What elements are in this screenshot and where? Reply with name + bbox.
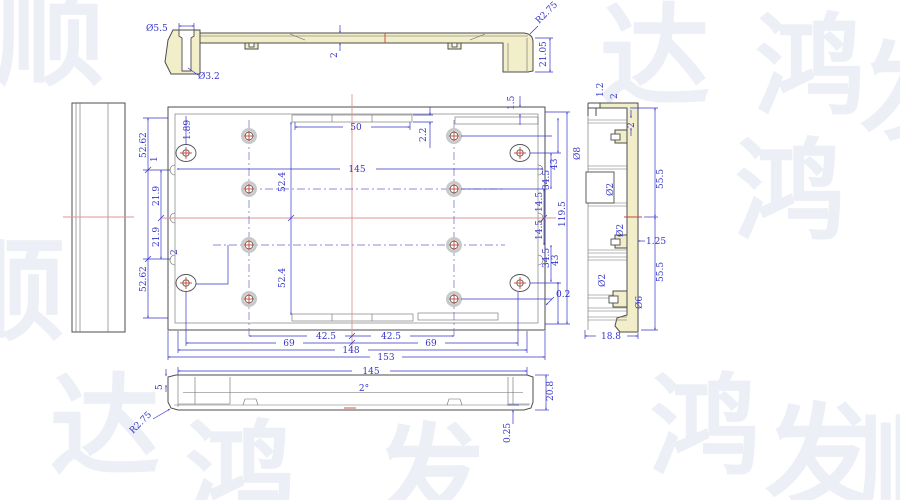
watermark-char: 鸿 [650,363,760,491]
dim-label: 2° [359,384,369,394]
dim-label: 145 [348,165,365,175]
dim-label: Ø2 [605,183,616,196]
boss-hole [243,239,256,252]
dim-label: 5 [155,384,165,390]
dim-label: 43 [550,158,560,170]
boss-hole [243,130,256,143]
dim-label: Ø2 [597,274,608,287]
dim-label: 1.5 [507,95,517,110]
top-profile-view: Ø5.5 Ø3.2 2 R2.75 21.05 [146,0,560,82]
dim-label: Ø2 [615,224,626,237]
top-right-slot [455,117,538,124]
watermark-char: 鸿 [755,3,865,131]
dim-label: 1 [150,156,160,162]
boss-hole [243,293,256,306]
dim-label: Ø8 [572,147,583,160]
plan-view: 52.62 52.62 21.9 21.9 1 2 1.89 52.4 52.4… [139,94,570,363]
dim-label-dia32: Ø3.2 [198,71,220,82]
plan-outer-wall [168,107,545,330]
boss-hole [448,183,461,196]
clip-bump [447,399,462,405]
boss-hole [448,130,461,143]
dim-label: 1.2 [596,83,606,97]
watermark-char: 顺 [0,228,65,356]
watermark-char: 发 [860,28,900,156]
cad-drawing-sheet: 顺 达 鸿 发 鸿 顺 达 鸿 发 鸿 发 顺 Ø5.5 Ø3.2 2 [0,0,900,500]
dim-label: Ø6 [634,296,645,309]
dim-label: 18.8 [601,332,621,342]
dim-label: 119.5 [558,201,568,227]
section-plate [200,33,533,72]
watermark-char: 顺 [0,0,105,101]
dim-label: 1.89 [183,120,193,140]
dim-label: 21.9 [152,186,162,206]
dim-label: 21.9 [152,227,162,247]
right-section-view: 1.2 2 2 Ø8 Ø2 55.5 55.5 Ø2 1.25 Ø2 Ø6 18… [572,83,666,342]
clip-bump [243,399,258,405]
dim-label: 2 [610,93,620,99]
dim-label: 52.4 [278,172,288,192]
dim-label: 50 [350,123,362,133]
dim-label: 69 [425,339,437,349]
rib-lines [588,120,627,320]
boss-hole [448,239,461,252]
dim-label-thk2: 2 [330,52,340,58]
dim-label: 2 [170,249,180,255]
dim-label-dia55: Ø5.5 [146,23,168,34]
watermark-char: 鸿 [185,410,295,500]
dim-label: 0.2 [556,290,570,300]
dim-label-2105: 21.05 [539,41,549,67]
corner-slot-hole [510,275,530,292]
left-side-view [63,103,134,332]
watermark-char: 顺 [857,403,900,500]
dim-label: 2 [627,122,637,128]
boss-hole [243,183,256,196]
bottom-slot [292,314,413,321]
dim-label: 52.4 [278,268,288,288]
dim-label: 52.62 [139,266,149,292]
corner-slot-hole [176,145,196,162]
dim-label: 55.5 [656,169,666,189]
boss-holes [243,130,461,306]
dim-label: 42.5 [381,332,401,342]
dim-label: 34.5 [542,170,552,190]
dim-label: 52.62 [139,132,149,158]
watermark-char: 鸿 [735,128,845,256]
dim-label-r275-top: R2.75 [534,0,560,26]
dim-label: 2.2 [419,128,429,142]
dim-label: 1.25 [646,237,666,247]
dim-label: 148 [342,346,359,356]
dim-label: 20.8 [546,381,556,401]
drawing-svg: 顺 达 鸿 发 鸿 顺 达 鸿 发 鸿 发 顺 Ø5.5 Ø3.2 2 [0,0,900,500]
watermark-char: 发 [375,413,485,500]
boss-hole [448,293,461,306]
bottom-right-slot [418,313,498,320]
dim-label: 14.5 [535,220,545,240]
plan-inner-wall [175,114,538,323]
dim-label: 0.25 [503,423,513,443]
dim-label: 145 [362,367,379,377]
dim-label: 42.5 [316,332,336,342]
corner-slot-hole [510,145,530,162]
dim-label: 69 [283,339,295,349]
dim-label: 153 [377,353,394,363]
corner-slot-hole [176,275,196,292]
dim-label: 14.5 [535,192,545,212]
dim-label: 55.5 [656,262,666,282]
dim-label: 43 [551,254,561,266]
